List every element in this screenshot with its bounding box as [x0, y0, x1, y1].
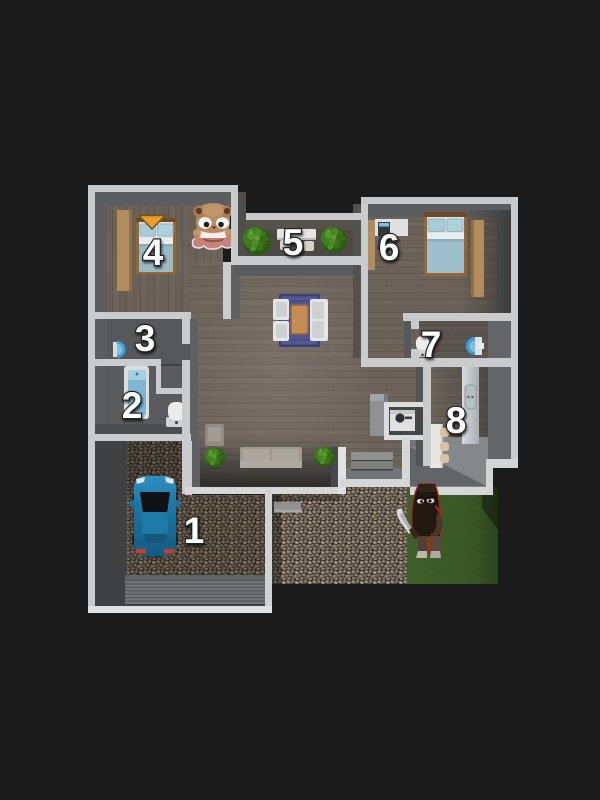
svg-text:5: 5 [283, 222, 304, 263]
svg-text:4: 4 [143, 232, 164, 273]
svg-text:6: 6 [379, 227, 400, 268]
svg-text:3: 3 [135, 318, 156, 359]
svg-text:1: 1 [184, 510, 205, 551]
svg-text:8: 8 [446, 400, 467, 441]
svg-text:7: 7 [421, 324, 442, 365]
svg-text:2: 2 [122, 385, 143, 426]
